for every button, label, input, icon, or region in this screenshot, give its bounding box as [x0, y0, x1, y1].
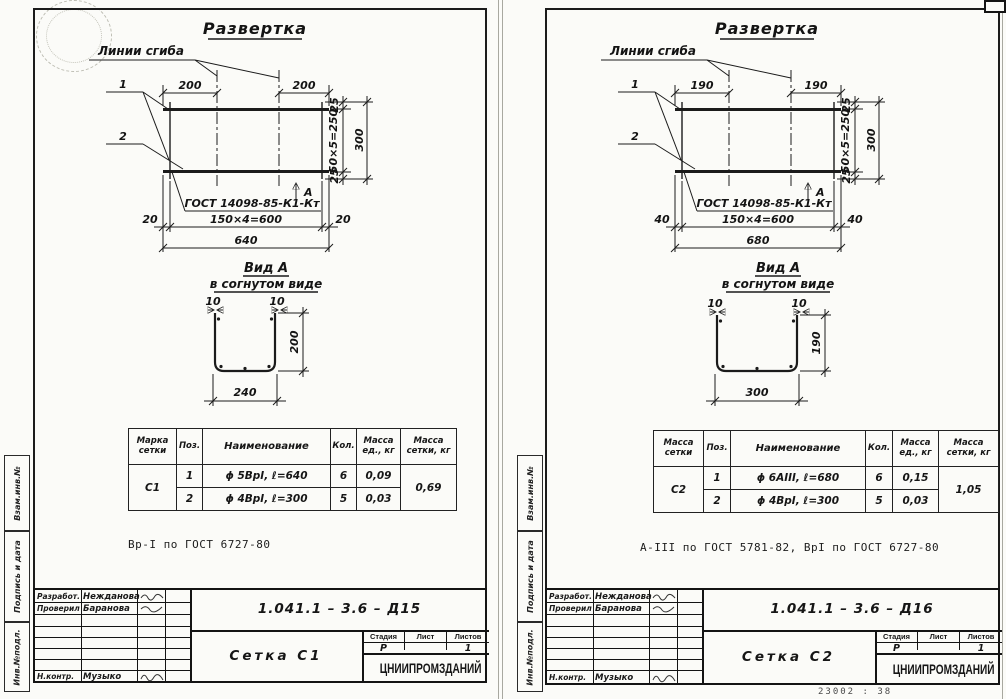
view-a-title: Вид А [756, 261, 800, 276]
margin-label-vzam: Взам.инв.№ [526, 466, 535, 521]
title-block: Разработ. Нежданова Проверил Баранова Н.… [33, 588, 487, 683]
dim-top-left: 190 [691, 79, 714, 92]
margin-label-podpis: Подпись и дата [526, 540, 535, 613]
cell-mass-total: 1,05 [939, 467, 999, 513]
checked-label: Проверил [37, 604, 80, 613]
sheet-c1: Взам.инв.№ Подпись и дата Инв.№подл. Раз… [0, 0, 500, 699]
organization-name: ЦНИИПРОМЗДАНИЙ [380, 660, 471, 676]
dim-side-mid: 50×5=250 [839, 108, 852, 173]
signature [139, 592, 165, 601]
cell-name: ϕ 5ВрI, ℓ=640 [203, 465, 331, 488]
pos-2-callout: 2 [631, 130, 639, 143]
dim-side-25-bottom: 25 [840, 168, 853, 184]
checked-by: Баранова [595, 604, 642, 614]
dim-bot-right: 20 [335, 213, 351, 226]
ncontrol-label: Н.контр. [549, 673, 586, 682]
margin-box-inv: Инв.№подл. [517, 622, 543, 692]
material-note: Вр-I по ГОСТ 6727-80 [128, 538, 270, 551]
view-a-subtitle: в согнутом виде [722, 277, 835, 291]
margin-label-inv: Инв.№подл. [526, 629, 535, 685]
margin-box-vzam: Взам.инв.№ [517, 455, 543, 531]
cell-qty: 6 [866, 467, 893, 490]
margin-box-inv: Инв.№подл. [4, 622, 30, 692]
col-header-pos: Поз. [704, 431, 731, 467]
col-header-mass-total: Масса сетки, кг [401, 429, 457, 465]
signature [651, 673, 677, 683]
fold-lines-label: Линии сгиба [97, 44, 184, 58]
dim-side-total: 300 [865, 128, 878, 151]
dim-top-right: 190 [805, 79, 828, 92]
cell-qty: 5 [866, 490, 893, 513]
development-title: Развертка [203, 19, 307, 38]
material-note: А-III по ГОСТ 5781-82, ВрI по ГОСТ 6727-… [640, 541, 939, 554]
col-header-qty: Кол. [866, 431, 893, 467]
margin-label-inv: Инв.№подл. [13, 629, 22, 685]
weld-gost-label: ГОСТ 14098-85-К1-Кт [184, 197, 320, 210]
dim-top-left: 200 [179, 79, 202, 92]
sheet-label: Лист [918, 632, 959, 641]
development-drawing: Развертка Линии сгиба 1 2 [33, 8, 487, 420]
document-number: 1.041.1 – 3.6 – Д15 [190, 601, 489, 617]
margin-label-podpis: Подпись и дата [13, 540, 22, 613]
footer-archive-note: 23002 : 38 [818, 687, 892, 697]
cell-mass: 0,15 [893, 467, 939, 490]
dim-bot-left: 40 [653, 213, 670, 226]
stage-label: Стадия [363, 632, 404, 641]
sheet-label: Лист [405, 632, 446, 641]
view-dim-edge-right: 10 [269, 295, 285, 308]
signature [651, 604, 677, 613]
document-number: 1.041.1 – 3.6 – Д16 [702, 601, 1002, 617]
dim-bot-total: 680 [747, 234, 770, 247]
pos-1-callout: 1 [631, 78, 639, 91]
margin-label-vzam: Взам.инв.№ [13, 466, 22, 521]
cell-mark: С1 [129, 465, 177, 511]
stage-label: Стадия [876, 632, 917, 641]
developed-label: Разработ. [549, 592, 592, 601]
col-header-name: Наименование [203, 429, 331, 465]
view-dim-height: 200 [288, 330, 301, 353]
view-dim-edge-left: 10 [707, 297, 723, 310]
cell-qty: 6 [331, 465, 357, 488]
developed-by: Нежданова [83, 592, 140, 602]
drawing-title: Сетка С1 [190, 648, 362, 664]
pos-1-callout: 1 [119, 78, 127, 91]
col-header-mass: Масса ед., кг [357, 429, 401, 465]
dim-bot-mid: 150×4=600 [722, 213, 794, 226]
margin-box-podpis: Подпись и дата [4, 531, 30, 622]
stage-value: Р [876, 643, 917, 654]
col-header-name: Наименование [731, 431, 866, 467]
signature [651, 592, 677, 601]
ncontrol-by: Музыко [595, 673, 633, 683]
sheets-value: 1 [447, 643, 489, 654]
developed-label: Разработ. [37, 592, 80, 601]
weld-gost-label: ГОСТ 14098-85-К1-Кт [696, 197, 832, 210]
cell-pos: 2 [177, 488, 203, 511]
development-title: Развертка [715, 19, 819, 38]
drawing-title: Сетка С2 [702, 649, 875, 665]
cell-name: ϕ 6АIII, ℓ=680 [731, 467, 866, 490]
cell-mass: 0,03 [357, 488, 401, 511]
cell-name: ϕ 4ВрI, ℓ=300 [731, 490, 866, 513]
col-header-pos: Поз. [177, 429, 203, 465]
cell-pos: 2 [704, 490, 731, 513]
dim-side-25-bottom: 25 [328, 168, 341, 184]
signature [139, 672, 165, 682]
dim-bot-left: 20 [142, 213, 158, 226]
cell-qty: 5 [331, 488, 357, 511]
view-dim-width: 300 [746, 386, 769, 399]
developed-by: Нежданова [595, 592, 652, 602]
dim-bot-total: 640 [235, 234, 258, 247]
signature [139, 604, 165, 613]
margin-box-vzam: Взам.инв.№ [4, 455, 30, 531]
sheets-label: Листов [447, 632, 489, 641]
view-dim-edge-right: 10 [791, 297, 807, 310]
checked-by: Баранова [83, 604, 130, 614]
fold-lines-label: Линии сгиба [609, 44, 696, 58]
stage-value: Р [363, 643, 404, 654]
view-a-title: Вид А [244, 261, 288, 276]
development-drawing: Развертка Линии сгиба 1 2 190 [545, 8, 1000, 420]
checked-label: Проверил [549, 604, 592, 613]
dim-top-right: 200 [293, 79, 316, 92]
sheets-label: Листов [960, 632, 1002, 641]
col-header-qty: Кол. [331, 429, 357, 465]
dim-side-total: 300 [353, 128, 366, 151]
view-dim-width: 240 [234, 386, 257, 399]
cell-mass-total: 0,69 [401, 465, 457, 511]
view-dim-edge-left: 10 [205, 295, 221, 308]
ncontrol-by: Музыко [83, 672, 121, 682]
col-header-mass: Масса ед., кг [893, 431, 939, 467]
sheet-c2: Взам.инв.№ Подпись и дата Инв.№подл. Раз… [503, 0, 1006, 699]
pos-2-callout: 2 [119, 130, 127, 143]
scanned-drawing-pair: Взам.инв.№ Подпись и дата Инв.№подл. Раз… [0, 0, 1006, 699]
col-header-mass-total: Масса сетки, кг [939, 431, 999, 467]
cell-pos: 1 [177, 465, 203, 488]
title-block: Разработ. Нежданова Проверил Баранова Н.… [545, 588, 1000, 685]
cell-mass: 0,03 [893, 490, 939, 513]
margin-box-podpis: Подпись и дата [517, 531, 543, 622]
organization-name: ЦНИИПРОМЗДАНИЙ [893, 661, 984, 677]
parts-table: Масса сетки Поз. Наименование Кол. Масса… [653, 430, 999, 513]
cell-name: ϕ 4ВрI, ℓ=300 [203, 488, 331, 511]
sheets-value: 1 [960, 643, 1002, 654]
parts-table: Марка сетки Поз. Наименование Кол. Масса… [128, 428, 457, 511]
cell-mark: С2 [654, 467, 704, 513]
cell-mass: 0,09 [357, 465, 401, 488]
cell-pos: 1 [704, 467, 731, 490]
ncontrol-label: Н.контр. [37, 672, 74, 681]
dim-side-mid: 50×5=250 [327, 108, 340, 173]
dim-bot-right: 40 [846, 213, 863, 226]
corner-box [984, 0, 1006, 13]
dim-bot-mid: 150×4=600 [210, 213, 282, 226]
col-header-mark: Масса сетки [654, 431, 704, 467]
view-a-subtitle: в согнутом виде [210, 277, 323, 291]
view-dim-height: 190 [810, 331, 823, 354]
col-header-mark: Марка сетки [129, 429, 177, 465]
